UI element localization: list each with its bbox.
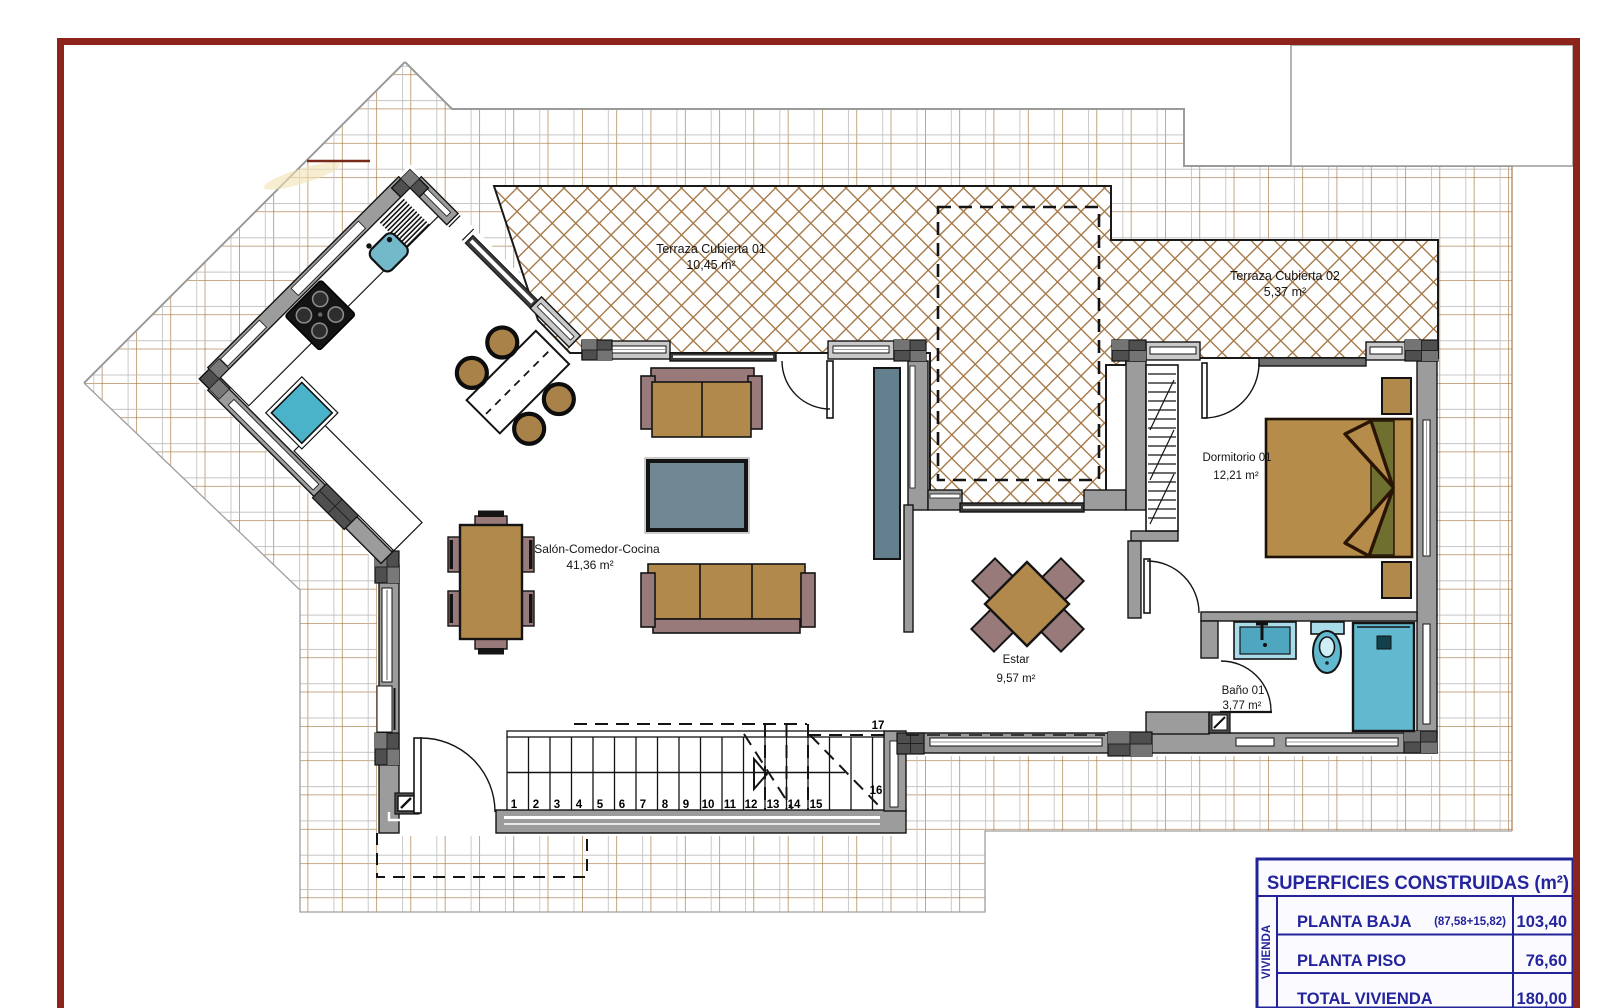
- svg-text:9,57 m²: 9,57 m²: [997, 673, 1036, 685]
- svg-text:6: 6: [619, 799, 625, 811]
- svg-text:Terraza Cubierta 02: Terraza Cubierta 02: [1230, 269, 1340, 283]
- svg-text:16: 16: [870, 785, 883, 797]
- svg-text:Baño 01: Baño 01: [1222, 685, 1265, 697]
- svg-text:11: 11: [724, 799, 737, 811]
- svg-text:SUPERFICIES CONSTRUIDAS (m²): SUPERFICIES CONSTRUIDAS (m²): [1267, 872, 1569, 894]
- svg-text:Terraza Cubierta 01: Terraza Cubierta 01: [656, 242, 766, 256]
- svg-text:3,77 m²: 3,77 m²: [1223, 700, 1262, 712]
- svg-text:4: 4: [576, 799, 583, 811]
- svg-text:PLANTA PISO: PLANTA PISO: [1297, 952, 1406, 970]
- svg-text:41,36 m²: 41,36 m²: [566, 558, 613, 572]
- svg-text:5,37 m²: 5,37 m²: [1264, 285, 1306, 299]
- svg-text:17: 17: [872, 720, 885, 732]
- svg-text:12,21 m²: 12,21 m²: [1213, 470, 1259, 482]
- svg-text:9: 9: [683, 799, 689, 811]
- svg-text:PLANTA BAJA: PLANTA BAJA: [1297, 913, 1412, 931]
- svg-text:8: 8: [662, 799, 669, 811]
- svg-text:103,40: 103,40: [1517, 913, 1567, 931]
- svg-text:5: 5: [597, 799, 604, 811]
- svg-text:2: 2: [533, 799, 539, 811]
- svg-text:TOTAL VIVIENDA: TOTAL VIVIENDA: [1297, 990, 1433, 1008]
- svg-text:15: 15: [810, 799, 823, 811]
- svg-text:1: 1: [511, 799, 518, 811]
- svg-text:180,00: 180,00: [1517, 990, 1567, 1008]
- svg-text:7: 7: [640, 799, 646, 811]
- svg-text:10,45 m²: 10,45 m²: [686, 258, 735, 272]
- svg-text:VIVIENDA: VIVIENDA: [1261, 925, 1273, 979]
- svg-text:12: 12: [745, 799, 758, 811]
- svg-text:Estar: Estar: [1003, 654, 1030, 666]
- svg-text:76,60: 76,60: [1526, 952, 1567, 970]
- svg-text:Dormitorio 01: Dormitorio 01: [1202, 452, 1271, 464]
- svg-text:10: 10: [702, 799, 715, 811]
- svg-text:3: 3: [554, 799, 560, 811]
- svg-text:Salón-Comedor-Cocina: Salón-Comedor-Cocina: [534, 542, 660, 556]
- svg-text:13: 13: [767, 799, 780, 811]
- svg-text:(87,58+15,82): (87,58+15,82): [1434, 916, 1506, 928]
